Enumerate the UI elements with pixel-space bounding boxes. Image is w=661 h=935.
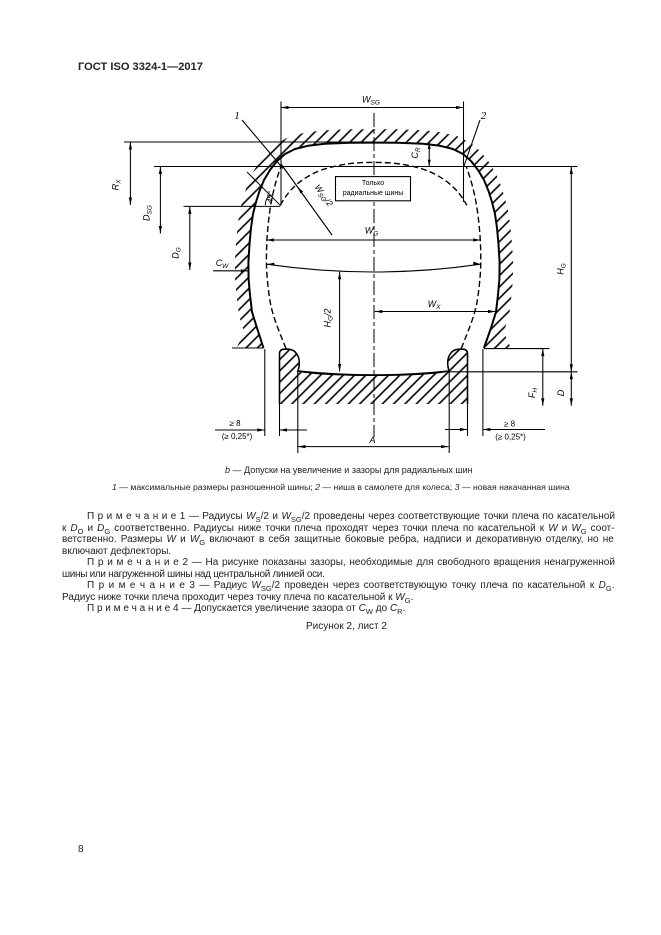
- svg-text:≥ 8: ≥ 8: [504, 420, 516, 429]
- svg-text:WSG: WSG: [362, 95, 380, 107]
- svg-text:Только: Только: [362, 180, 384, 187]
- svg-text:HG: HG: [556, 263, 568, 275]
- svg-text:радиальные шины: радиальные шины: [343, 190, 404, 197]
- svg-text:CW: CW: [216, 258, 230, 270]
- svg-text:DG: DG: [171, 247, 183, 259]
- svg-text:WX: WX: [428, 299, 442, 311]
- svg-text:WSG/2: WSG/2: [311, 182, 335, 209]
- svg-text:2: 2: [481, 110, 487, 122]
- svg-text:FH: FH: [527, 388, 539, 399]
- svg-text:(≥ 0,25*): (≥ 0,25*): [222, 432, 253, 441]
- svg-text:RX: RX: [111, 179, 123, 191]
- svg-text:D: D: [556, 389, 566, 396]
- svg-text:(≥ 0,25*): (≥ 0,25*): [495, 433, 526, 442]
- svg-text:1: 1: [234, 110, 240, 122]
- svg-text:≥ 8: ≥ 8: [229, 419, 241, 428]
- svg-text:HG/2: HG/2: [323, 308, 335, 327]
- svg-text:A: A: [368, 435, 375, 445]
- svg-text:45°: 45°: [265, 190, 276, 204]
- svg-text:WG: WG: [365, 226, 379, 238]
- svg-text:DSG: DSG: [142, 205, 154, 221]
- svg-text:CR: CR: [410, 147, 422, 159]
